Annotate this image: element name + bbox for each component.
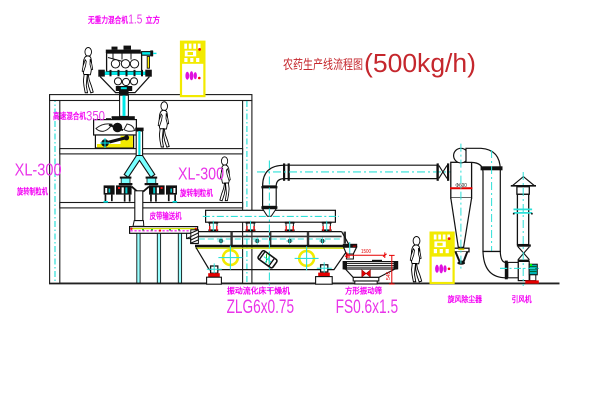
svg-text:545: 545 bbox=[386, 272, 392, 281]
svg-text:350: 350 bbox=[86, 108, 105, 123]
svg-text:1.5: 1.5 bbox=[128, 11, 142, 26]
svg-text:方形振动筛: 方形振动筛 bbox=[345, 285, 382, 295]
svg-text:XL-300: XL-300 bbox=[178, 165, 224, 184]
svg-text:旋风除尘器: 旋风除尘器 bbox=[447, 294, 483, 304]
svg-text:立方: 立方 bbox=[146, 14, 161, 25]
svg-text:FS0.6x1.5: FS0.6x1.5 bbox=[336, 295, 399, 317]
svg-text:农药生产线流程图: 农药生产线流程图 bbox=[283, 57, 363, 72]
svg-text:旋转制粒机: 旋转制粒机 bbox=[16, 185, 48, 196]
svg-text:(500kg/h): (500kg/h) bbox=[364, 48, 476, 78]
svg-text:XL-300: XL-300 bbox=[15, 161, 62, 180]
svg-text:1500: 1500 bbox=[361, 249, 371, 255]
svg-text:引风机: 引风机 bbox=[512, 294, 533, 304]
svg-text:无重力混合机: 无重力混合机 bbox=[87, 14, 128, 25]
svg-text:皮带输送机: 皮带输送机 bbox=[149, 210, 182, 221]
svg-text:旋转制粒机: 旋转制粒机 bbox=[179, 187, 213, 198]
svg-text:振动流化床干燥机: 振动流化床干燥机 bbox=[227, 285, 291, 295]
svg-text:ZLG6x0.75: ZLG6x0.75 bbox=[227, 295, 295, 317]
svg-text:高速混合机: 高速混合机 bbox=[53, 110, 86, 121]
